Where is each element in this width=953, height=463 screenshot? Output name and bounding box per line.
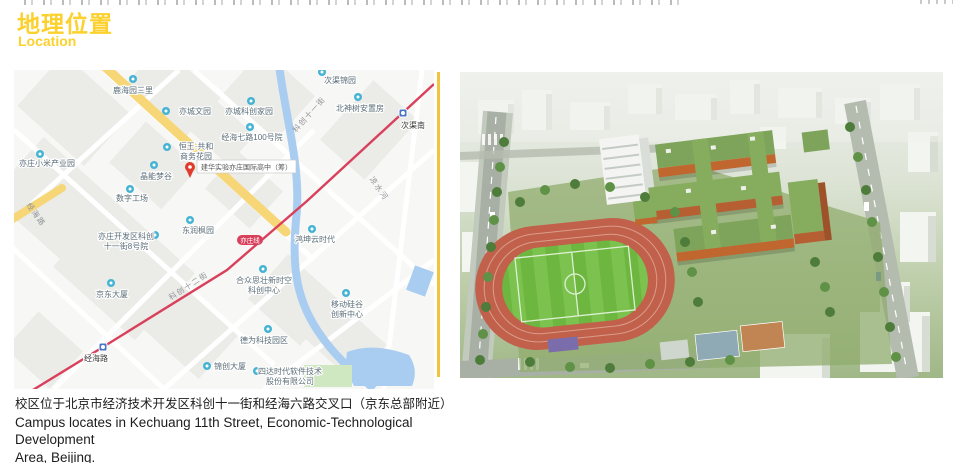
poi-label: 德为科技园区 — [240, 335, 288, 345]
poi-label: 恒王·共和 — [179, 141, 214, 151]
poi-icon-dot — [39, 153, 42, 156]
map-image: 鹿海园三里亦城文园亦城科创家园经海七路100号院恒王·共和商务花园晶能梦谷亦庄小… — [14, 70, 434, 389]
poi-icon-dot — [129, 188, 132, 191]
poi-label: 亦庄小米产业园 — [19, 158, 75, 168]
caption-line-en-2: Area, Beijing. — [15, 449, 485, 463]
poi-icon-dot — [249, 126, 252, 129]
poi-label: 亦城文园 — [179, 106, 211, 116]
poi-label: 鸿坤云时代 — [295, 234, 335, 244]
poi-icon-dot — [311, 228, 314, 231]
poi-icon-dot — [132, 78, 135, 81]
section-title-en: Location — [18, 33, 76, 49]
location-section: 地理位置 Location — [0, 0, 953, 463]
metro-line-badge-label: 亦庄线 — [240, 236, 260, 245]
poi-label: 十一街8号院 — [104, 241, 148, 251]
poi-label: 京东大厦 — [96, 289, 128, 299]
poi-icon-dot — [357, 96, 360, 99]
poi-icon-dot — [189, 219, 192, 222]
poi-label: 移动硅谷 — [331, 299, 363, 309]
yellow-divider — [437, 72, 440, 377]
poi-label: 商务花园 — [180, 151, 212, 161]
poi-label: 北神树安置房 — [336, 103, 384, 113]
poi-icon-dot — [166, 146, 169, 149]
caption-line-en-1: Campus locates in Kechuang 11th Street, … — [15, 414, 485, 449]
poi-label: 四达时代软件技术 — [258, 366, 322, 376]
poi-icon-dot — [206, 365, 209, 368]
pin-label: 建华实验亦庄国际高中（筹） — [201, 163, 292, 172]
metro-line-badge: 亦庄线 — [237, 235, 263, 245]
poi-label: 经海七路100号院 — [221, 132, 282, 142]
map-svg: 鹿海园三里亦城文园亦城科创家园经海七路100号院恒王·共和商务花园晶能梦谷亦庄小… — [14, 70, 434, 389]
campus-rendering-svg — [460, 72, 943, 378]
poi-label: 创新中心 — [331, 309, 363, 319]
cropped-text-remnant — [24, 0, 684, 5]
poi-icon-dot — [250, 100, 253, 103]
cropped-text-remnant-2 — [920, 0, 953, 4]
poi-label: 亦城科创家园 — [225, 106, 273, 116]
campus-rendering-image — [460, 72, 943, 378]
poi-icon-dot — [321, 71, 324, 74]
poi-label: 次渠锦园 — [324, 75, 356, 85]
caption-line-zh: 校区位于北京市经济技术开发区科创十一街和经海六路交叉口（京东总部附近） — [15, 396, 485, 414]
poi-label: 晶能梦谷 — [140, 171, 172, 181]
poi-label: 股份有限公司 — [266, 376, 314, 386]
poi-icon-dot — [165, 110, 168, 113]
poi-icon-dot — [153, 164, 156, 167]
poi-label: 数字工场 — [116, 193, 148, 203]
poi-icon-dot — [345, 292, 348, 295]
poi-label: 锦创大厦 — [214, 361, 246, 371]
poi-label: 东润枫园 — [182, 225, 214, 235]
poi-icon-dot — [262, 268, 265, 271]
metro-station-label: 次渠南 — [401, 120, 425, 130]
caption: 校区位于北京市经济技术开发区科创十一街和经海六路交叉口（京东总部附近） Camp… — [15, 396, 485, 463]
poi-label: 科创中心 — [248, 285, 280, 295]
poi-label: 亦庄开发区科创 — [98, 231, 154, 241]
poi-icon-dot — [267, 328, 270, 331]
poi-icon-dot — [110, 282, 113, 285]
poi-label: 鹿海园三里 — [113, 85, 153, 95]
metro-station-label: 经海路 — [84, 353, 108, 363]
poi-label: 合众思壮新时空 — [236, 275, 292, 285]
